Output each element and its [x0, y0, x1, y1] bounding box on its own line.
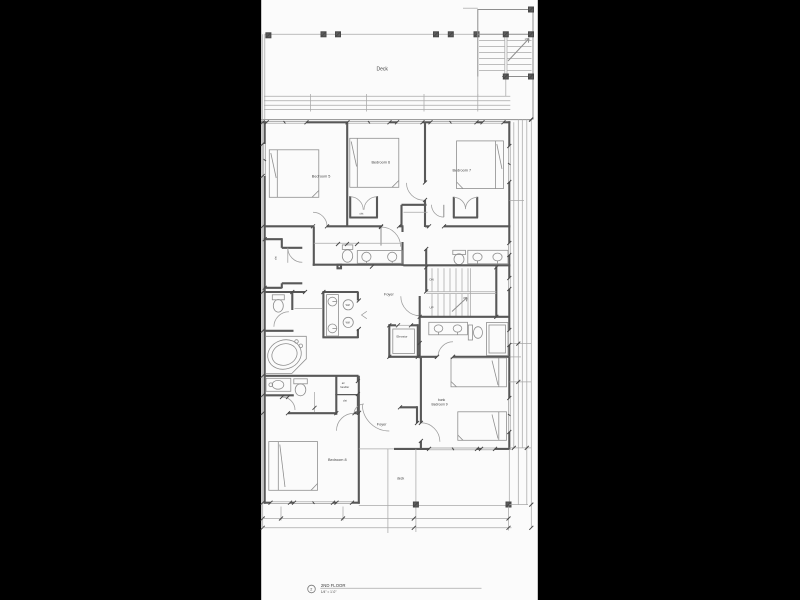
svg-text:Bedroom 8: Bedroom 8	[328, 458, 347, 462]
svg-text:deck: deck	[397, 477, 404, 481]
svg-text:Deck: Deck	[377, 66, 389, 72]
svg-text:Bedroom 7: Bedroom 7	[453, 169, 472, 173]
svg-text:2ND FLOOR: 2ND FLOOR	[321, 583, 346, 588]
svg-text:2: 2	[310, 588, 312, 592]
svg-text:Elevator: Elevator	[397, 335, 408, 339]
svg-text:bunk: bunk	[438, 398, 446, 402]
svg-text:Bedroom 6: Bedroom 6	[372, 161, 391, 165]
svg-text:air: air	[342, 381, 345, 385]
svg-text:WM: WM	[346, 323, 350, 325]
svg-text:Foyer: Foyer	[384, 293, 394, 297]
svg-text:clst: clst	[274, 256, 278, 260]
svg-text:DN: DN	[430, 278, 434, 282]
svg-text:UP: UP	[430, 306, 434, 310]
svg-text:Bedroom 9: Bedroom 9	[432, 403, 448, 407]
svg-text:clst: clst	[343, 399, 347, 403]
svg-text:Bedroom 5: Bedroom 5	[312, 175, 331, 179]
svg-text:Foyer: Foyer	[377, 423, 387, 427]
svg-text:handler: handler	[340, 385, 349, 389]
svg-text:clst: clst	[360, 212, 364, 216]
svg-text:1/4" = 1'-0": 1/4" = 1'-0"	[321, 590, 337, 594]
svg-text:WM: WM	[346, 305, 350, 307]
